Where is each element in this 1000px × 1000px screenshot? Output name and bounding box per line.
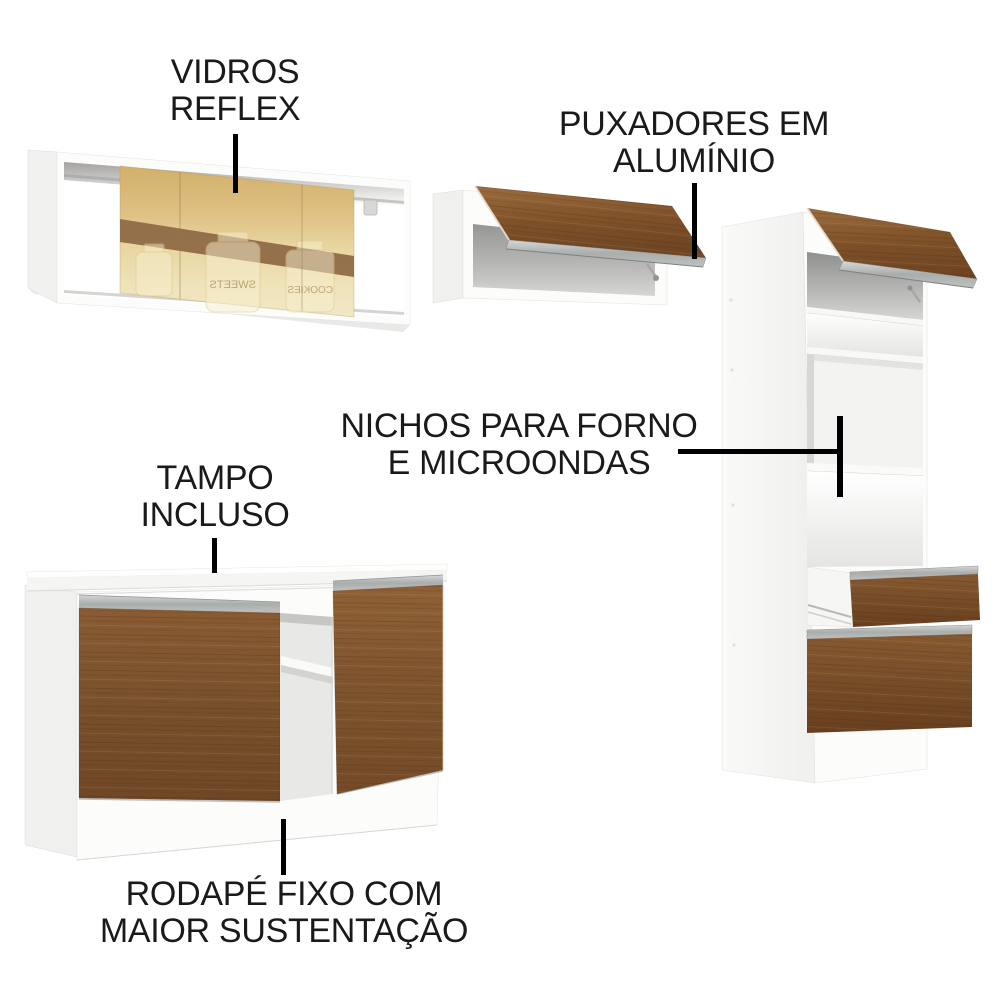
product-annotation-image: SWEETS COOKIES — [0, 0, 1000, 1000]
callout-line: ALUMÍNIO — [559, 143, 829, 180]
cabinet-left-side — [433, 190, 463, 303]
callout-puxadores-aluminio: PUXADORES EM ALUMÍNIO — [559, 106, 829, 180]
base-cabinet-with-countertop — [18, 558, 454, 864]
callout-line: TAMPO — [140, 460, 289, 497]
pointer-line-tampo — [212, 538, 217, 573]
glass-wall-cabinet: SWEETS COOKIES — [20, 140, 420, 350]
callout-line: RODAPÉ FIXO COM — [100, 876, 468, 913]
cabinet-left-side — [25, 585, 77, 857]
pointer-line-nichos-end-cap — [837, 416, 843, 497]
callout-rodape-fixo: RODAPÉ FIXO COM MAIOR SUSTENTAÇÃO — [100, 876, 468, 950]
callout-line: NICHOS PARA FORNO — [341, 408, 698, 445]
callout-nichos-forno-microondas: NICHOS PARA FORNO E MICROONDAS — [341, 408, 698, 482]
callout-vidros-reflex: VIDROS REFLEX — [170, 54, 300, 128]
tower-left-side — [722, 212, 815, 783]
pointer-line-puxadores — [692, 183, 697, 259]
callout-tampo-incluso: TAMPO INCLUSO — [140, 460, 289, 534]
callout-line: REFLEX — [170, 91, 300, 128]
cabinet-interior — [280, 613, 333, 801]
right-door-ajar — [333, 575, 443, 794]
callout-line: MAIOR SUSTENTAÇÃO — [100, 913, 468, 950]
pointer-line-vidros — [233, 134, 238, 193]
lower-drawer — [807, 625, 972, 733]
glass-door-clip — [364, 200, 377, 215]
callout-line: VIDROS — [170, 54, 300, 91]
oven-tower-cabinet — [715, 205, 987, 790]
open-drawer — [807, 566, 980, 627]
callout-line: PUXADORES EM — [559, 106, 829, 143]
left-door — [79, 595, 280, 801]
callout-line: INCLUSO — [140, 497, 289, 534]
flip-door-wall-cabinet — [428, 178, 718, 313]
callout-line: E MICROONDAS — [341, 445, 698, 482]
jar-label-cookies: COOKIES — [287, 285, 333, 296]
pointer-line-nichos — [678, 449, 839, 454]
jar-label-sweets: SWEETS — [210, 279, 256, 291]
pointer-line-rodape — [281, 819, 286, 875]
cabinet-left-side — [28, 150, 57, 303]
microwave-niche — [807, 471, 923, 567]
